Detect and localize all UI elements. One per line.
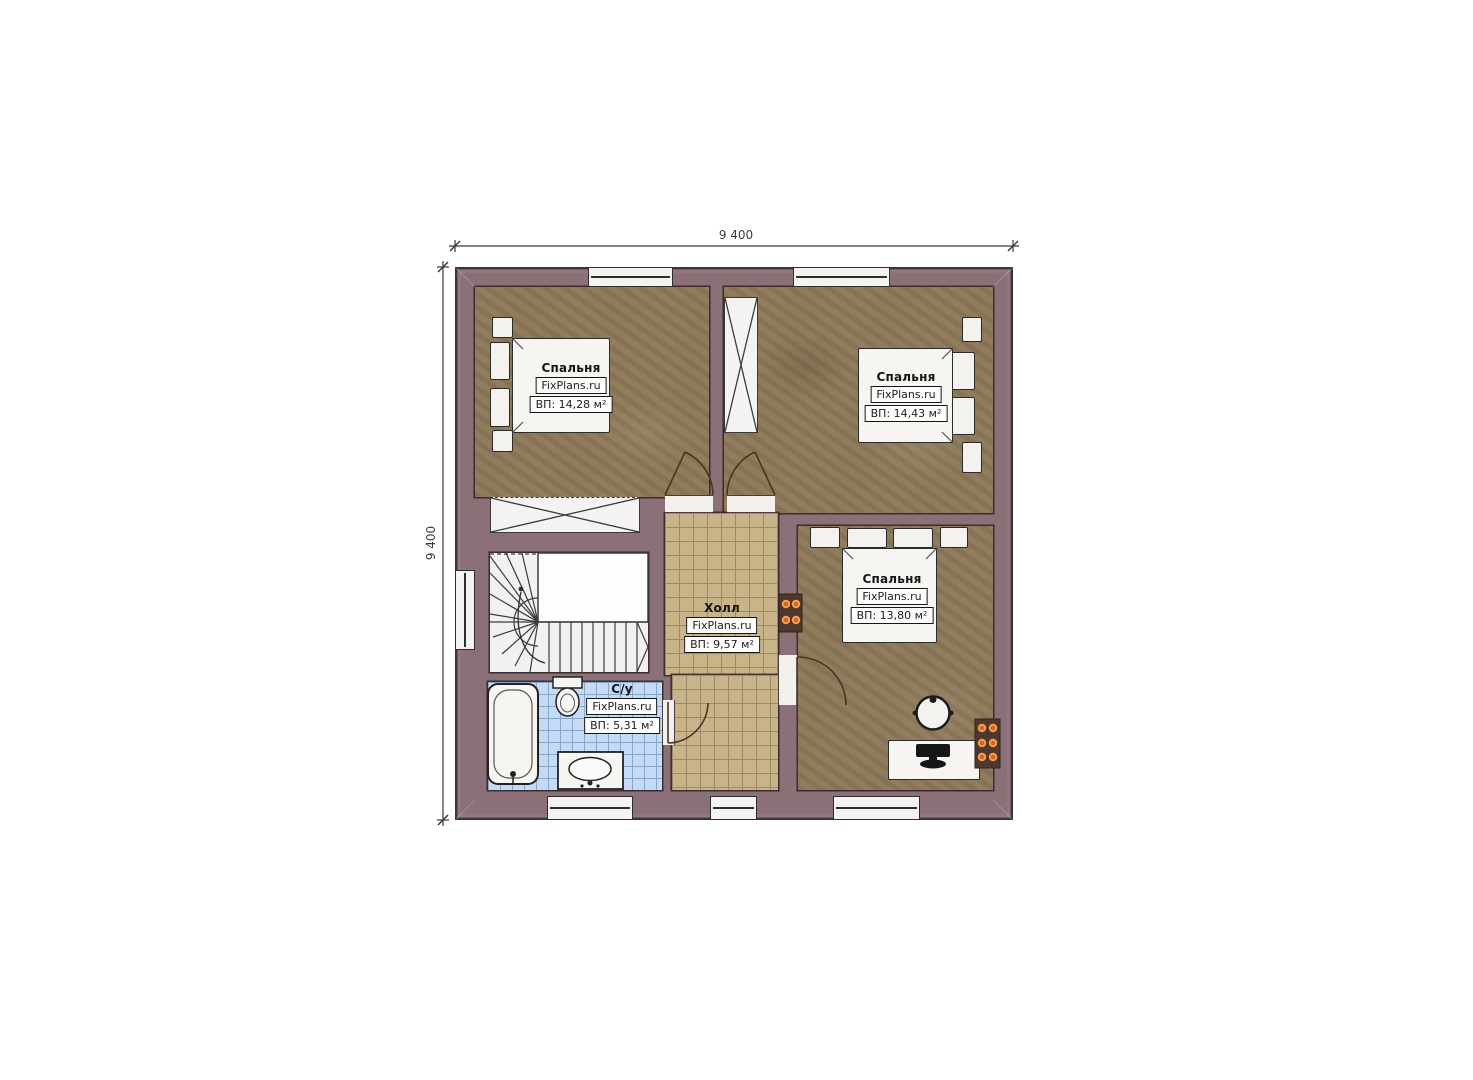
room-label-bedroom-bottom-right: Спальня FixPlans.ru ВП: 13,80 м²: [851, 572, 934, 624]
room-brand: FixPlans.ru: [686, 617, 757, 634]
room-brand: FixPlans.ru: [870, 386, 941, 403]
room-label-bathroom: С/у FixPlans.ru ВП: 5,31 м²: [584, 682, 660, 734]
window-top-2: [793, 267, 890, 287]
window-bottom-2: [710, 796, 757, 820]
room-title: Холл: [704, 601, 740, 615]
door-opening-bedroom-top-left: [665, 495, 713, 513]
stairwell-area: [490, 553, 648, 672]
door-opening-bathroom: [662, 700, 675, 745]
closet-bedroom-top-left: [490, 497, 640, 533]
pillow: [490, 388, 510, 427]
window-left: [455, 570, 475, 650]
door-opening-bedroom-bottom-right: [778, 655, 798, 705]
room-label-bedroom-top-left: Спальня FixPlans.ru ВП: 14,28 м²: [530, 361, 613, 413]
nightstand: [962, 317, 982, 342]
room-area: ВП: 14,28 м²: [530, 396, 613, 413]
room-area: ВП: 5,31 м²: [584, 717, 660, 734]
pillow: [847, 528, 887, 548]
room-area: ВП: 14,43 м²: [865, 405, 948, 422]
dimension-top-label: 9 400: [719, 228, 753, 242]
pillow: [490, 342, 510, 380]
window-top-1: [588, 267, 673, 287]
window-bottom-1: [547, 796, 633, 820]
room-title: Спальня: [863, 572, 922, 586]
pillow: [893, 528, 933, 548]
room-brand: FixPlans.ru: [535, 377, 606, 394]
dimension-left-label: 9 400: [424, 526, 438, 560]
door-opening-bedroom-top-right: [727, 495, 775, 513]
room-area: ВП: 13,80 м²: [851, 607, 934, 624]
nightstand: [962, 442, 982, 473]
nightstand: [940, 527, 968, 548]
floor-plan-page: 9 400 9 400: [0, 0, 1473, 1080]
room-area: ВП: 9,57 м²: [684, 636, 760, 653]
room-title: Спальня: [542, 361, 601, 375]
room-label-hall: Холл FixPlans.ru ВП: 9,57 м²: [684, 601, 760, 653]
room-title: С/у: [611, 682, 633, 696]
room-brand: FixPlans.ru: [856, 588, 927, 605]
wardrobe-bedroom-top-right: [724, 297, 758, 433]
desk: [888, 740, 980, 780]
room-brand: FixPlans.ru: [586, 698, 657, 715]
nightstand: [492, 430, 513, 452]
floor-hall-lower: [672, 675, 778, 790]
nightstand: [492, 317, 513, 338]
nightstand: [810, 527, 840, 548]
room-label-bedroom-top-right: Спальня FixPlans.ru ВП: 14,43 м²: [865, 370, 948, 422]
room-title: Спальня: [877, 370, 936, 384]
window-bottom-3: [833, 796, 920, 820]
